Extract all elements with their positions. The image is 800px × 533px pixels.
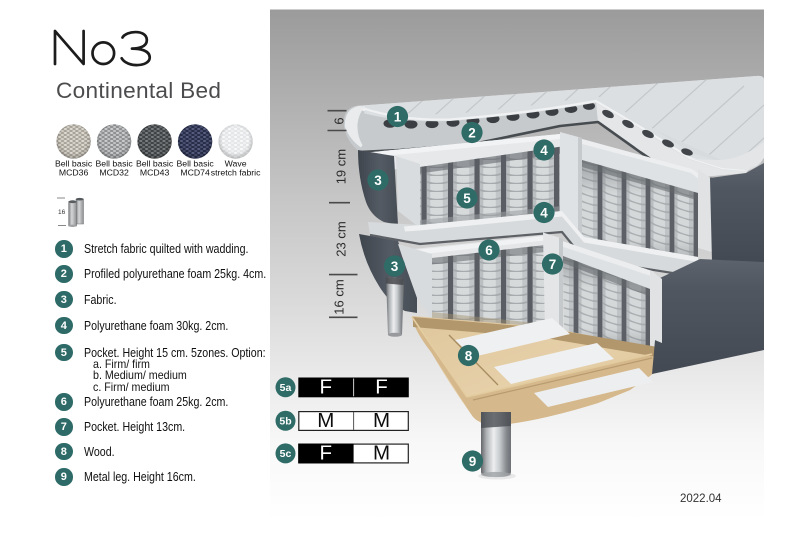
- svg-text:6: 6: [332, 117, 347, 124]
- svg-text:3: 3: [374, 173, 382, 188]
- svg-text:19 cm: 19 cm: [334, 149, 349, 184]
- svg-text:9: 9: [469, 454, 477, 469]
- svg-text:F: F: [320, 375, 333, 398]
- svg-text:6: 6: [485, 243, 493, 258]
- svg-text:16: 16: [58, 209, 66, 216]
- svg-text:M: M: [317, 409, 334, 432]
- svg-text:1: 1: [394, 109, 402, 124]
- svg-text:MCD74: MCD74: [180, 168, 210, 178]
- svg-text:7: 7: [549, 257, 557, 272]
- svg-text:4: 4: [540, 143, 548, 158]
- svg-text:16 cm: 16 cm: [332, 279, 347, 314]
- svg-text:2022.04: 2022.04: [680, 493, 722, 505]
- svg-text:M: M: [373, 442, 390, 465]
- svg-text:8: 8: [465, 348, 473, 363]
- svg-text:5a: 5a: [280, 382, 292, 394]
- svg-text:MCD43: MCD43: [140, 168, 170, 178]
- svg-text:stretch fabric: stretch fabric: [211, 168, 261, 178]
- svg-text:5: 5: [463, 191, 471, 206]
- svg-text:23 cm: 23 cm: [334, 221, 349, 256]
- svg-text:M: M: [373, 409, 390, 432]
- svg-text:F: F: [320, 442, 333, 465]
- svg-text:5c: 5c: [280, 448, 292, 460]
- svg-text:F: F: [375, 375, 388, 398]
- svg-text:2: 2: [468, 125, 476, 140]
- svg-text:5b: 5b: [279, 416, 291, 428]
- svg-text:3: 3: [391, 259, 399, 274]
- svg-text:4: 4: [540, 205, 548, 220]
